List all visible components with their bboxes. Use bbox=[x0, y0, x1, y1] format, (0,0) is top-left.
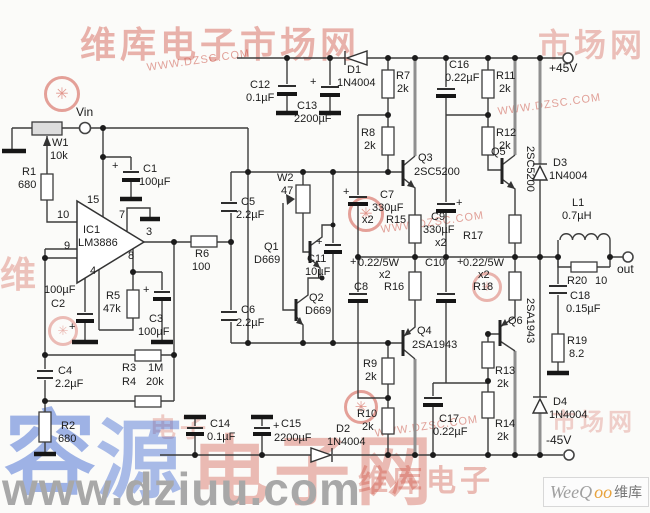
label-r17-ref: R17 bbox=[463, 231, 483, 243]
label-r19-val: 8.2 bbox=[569, 349, 584, 361]
label-c11-ref: C11 bbox=[307, 254, 326, 266]
label-vin: Vin bbox=[76, 106, 93, 119]
label-q4-ref: Q4 bbox=[417, 326, 432, 338]
label-d3-ref: D3 bbox=[553, 158, 567, 170]
label-pos-rail: +45V bbox=[549, 62, 577, 75]
label-c15-val: 2200µF bbox=[274, 433, 312, 445]
label-c18-val: 0.15µF bbox=[566, 304, 600, 316]
label-r9-ref: R9 bbox=[363, 359, 377, 371]
label-r11-ref: R11 bbox=[496, 71, 515, 83]
label-d2-ref: D2 bbox=[336, 424, 350, 436]
label-r4-val: 20k bbox=[146, 377, 164, 389]
label-c1-ref: C1 bbox=[143, 164, 157, 176]
label-r16-ref: R16 bbox=[384, 282, 404, 294]
label-c3-val: 100µF bbox=[138, 327, 169, 339]
label-c9-val: 330µF bbox=[423, 225, 454, 237]
label-c15-plus: + bbox=[273, 421, 279, 433]
label-pin10: 10 bbox=[57, 210, 69, 222]
label-c9-plus: + bbox=[456, 198, 462, 210]
label-c14-ref: C14 bbox=[210, 419, 230, 431]
label-c2-val: 100µF bbox=[44, 285, 75, 297]
label-q3-ref: Q3 bbox=[418, 153, 433, 165]
weeqoo-badge: WeeQoo维库 bbox=[543, 477, 649, 507]
label-q2-ref: Q2 bbox=[309, 293, 324, 305]
label-r14-val: 2k bbox=[497, 432, 509, 444]
label-r8-val: 2k bbox=[364, 141, 376, 153]
label-r7-ref: R7 bbox=[396, 71, 410, 83]
label-q5-ref: Q5 bbox=[491, 147, 506, 159]
label-c2-ref: C2 bbox=[51, 299, 65, 311]
label-c7-val: 330µF bbox=[372, 203, 403, 215]
label-w2-val: 47 bbox=[281, 186, 293, 198]
label-c3-ref: C3 bbox=[149, 314, 163, 326]
label-q4-val: 2SA1943 bbox=[412, 340, 457, 352]
label-pin4: 4 bbox=[90, 266, 96, 278]
label-r3-ref: R3 bbox=[122, 363, 136, 375]
label-ic1-part: LM3886 bbox=[78, 238, 118, 250]
label-c13-ref: C13 bbox=[297, 101, 317, 113]
label-l1-val: 0.7µH bbox=[562, 211, 592, 223]
label-q1-val: D669 bbox=[254, 255, 280, 267]
label-w1-val: 10k bbox=[50, 151, 68, 163]
label-out: out bbox=[617, 263, 634, 276]
label-r4-ref: R4 bbox=[122, 377, 136, 389]
label-c1-val: 100µF bbox=[139, 177, 170, 189]
label-c7-ref: C7 bbox=[380, 190, 394, 202]
label-x2-c: x2 bbox=[435, 238, 447, 250]
label-x2-d: x2 bbox=[478, 270, 490, 282]
label-c3-plus: + bbox=[143, 285, 149, 297]
label-c17-ref: C17 bbox=[439, 414, 459, 426]
label-r12-ref: R12 bbox=[496, 128, 516, 140]
label-c12-ref: C12 bbox=[250, 80, 270, 92]
label-q3-val: 2SC5200 bbox=[414, 167, 460, 179]
label-r6-ref: R6 bbox=[195, 249, 209, 261]
label-r10-ref: R10 bbox=[357, 409, 377, 421]
label-c15-ref: C15 bbox=[281, 419, 301, 431]
label-c10-ref: C10 bbox=[425, 258, 445, 270]
label-q5-val: 2SC5200 bbox=[523, 146, 535, 192]
label-c8-ref: C8 bbox=[354, 282, 368, 294]
label-c18-ref: C18 bbox=[570, 291, 590, 303]
label-c2-plus: + bbox=[69, 322, 75, 334]
label-c16-val: 0.22µF bbox=[445, 73, 479, 85]
label-w2-ref: W2 bbox=[277, 173, 294, 185]
label-c8-plus: + bbox=[350, 257, 356, 269]
label-c5-val: 2.2µF bbox=[236, 210, 264, 222]
label-r10-val: 2k bbox=[362, 422, 374, 434]
label-r9-val: 2k bbox=[365, 372, 377, 384]
label-r2-ref: R2 bbox=[61, 421, 75, 433]
label-r20-val: 10 bbox=[595, 276, 607, 288]
label-d2-val: 1N4004 bbox=[327, 437, 366, 449]
label-pin3: 3 bbox=[146, 227, 152, 239]
label-emitter-r-right: 0.22/5W bbox=[463, 258, 504, 270]
label-l1-ref: L1 bbox=[572, 198, 584, 210]
label-w1-ref: W1 bbox=[52, 138, 69, 150]
label-r6-val: 100 bbox=[192, 262, 210, 274]
label-c13-plus: + bbox=[310, 77, 316, 89]
label-r5-ref: R5 bbox=[106, 291, 120, 303]
label-r3-val: 1M bbox=[148, 363, 163, 375]
label-c17-val: 0.22µF bbox=[433, 427, 467, 439]
label-c14-val: 0.1µF bbox=[207, 432, 235, 444]
label-c11-plus: + bbox=[316, 237, 322, 249]
label-c9-ref: C9 bbox=[431, 212, 445, 224]
schematic-page: 维库电子市场网 市场网 维 电子 维库电子 市场网 WWW.DZSC.COM W… bbox=[0, 0, 650, 513]
label-c6-val: 2.2µF bbox=[236, 318, 264, 330]
label-q2-val: D669 bbox=[305, 306, 331, 318]
label-r11-val: 2k bbox=[499, 84, 511, 96]
label-d1-val: 1N4004 bbox=[337, 78, 376, 90]
label-r1-val: 680 bbox=[18, 180, 36, 192]
label-q6-val: 2SA1943 bbox=[523, 298, 535, 343]
label-c5-ref: C5 bbox=[241, 197, 255, 209]
label-c6-ref: C6 bbox=[241, 305, 255, 317]
label-x2-a: x2 bbox=[362, 215, 374, 227]
label-r7-val: 2k bbox=[397, 84, 409, 96]
label-d4-ref: D4 bbox=[553, 397, 567, 409]
label-pin7: 7 bbox=[119, 210, 125, 222]
label-pin15: 15 bbox=[87, 195, 99, 207]
label-pin9: 9 bbox=[64, 241, 70, 253]
label-r20-ref: R20 bbox=[567, 276, 587, 288]
label-r15-ref: R15 bbox=[386, 215, 406, 227]
label-d1-ref: D1 bbox=[347, 65, 361, 77]
label-r18-ref: R18 bbox=[473, 282, 493, 294]
label-c4-val: 2.2µF bbox=[55, 379, 83, 391]
label-c11-val: 10µF bbox=[305, 267, 330, 279]
label-d4-val: 1N4004 bbox=[549, 410, 588, 422]
label-emitter-r-left: 0.22/5W bbox=[358, 258, 399, 270]
label-c4-ref: C4 bbox=[58, 366, 72, 378]
label-r5-val: 47k bbox=[103, 304, 121, 316]
label-c1-plus: + bbox=[112, 161, 118, 173]
label-q1-ref: Q1 bbox=[264, 242, 279, 254]
label-q6-ref: Q6 bbox=[508, 316, 523, 328]
label-x2-b: x2 bbox=[379, 270, 391, 282]
label-r14-ref: R14 bbox=[495, 419, 515, 431]
label-pin8: 8 bbox=[128, 251, 134, 263]
label-ic1-ref: IC1 bbox=[83, 225, 100, 237]
label-neg-rail: -45V bbox=[546, 434, 571, 447]
label-c12-val: 0.1µF bbox=[246, 93, 274, 105]
label-c7-plus: + bbox=[343, 187, 349, 199]
label-c16-ref: C16 bbox=[449, 60, 469, 72]
label-r19-ref: R19 bbox=[567, 336, 587, 348]
label-c13-val: 2200µF bbox=[294, 114, 332, 126]
label-r8-ref: R8 bbox=[361, 128, 375, 140]
label-d3-val: 1N4004 bbox=[549, 171, 588, 183]
label-r1-ref: R1 bbox=[22, 167, 36, 179]
label-r13-ref: R13 bbox=[495, 366, 515, 378]
label-r13-val: 2k bbox=[497, 379, 509, 391]
label-r2-val: 680 bbox=[58, 434, 76, 446]
weeqoo-text: WeeQ bbox=[550, 482, 592, 503]
